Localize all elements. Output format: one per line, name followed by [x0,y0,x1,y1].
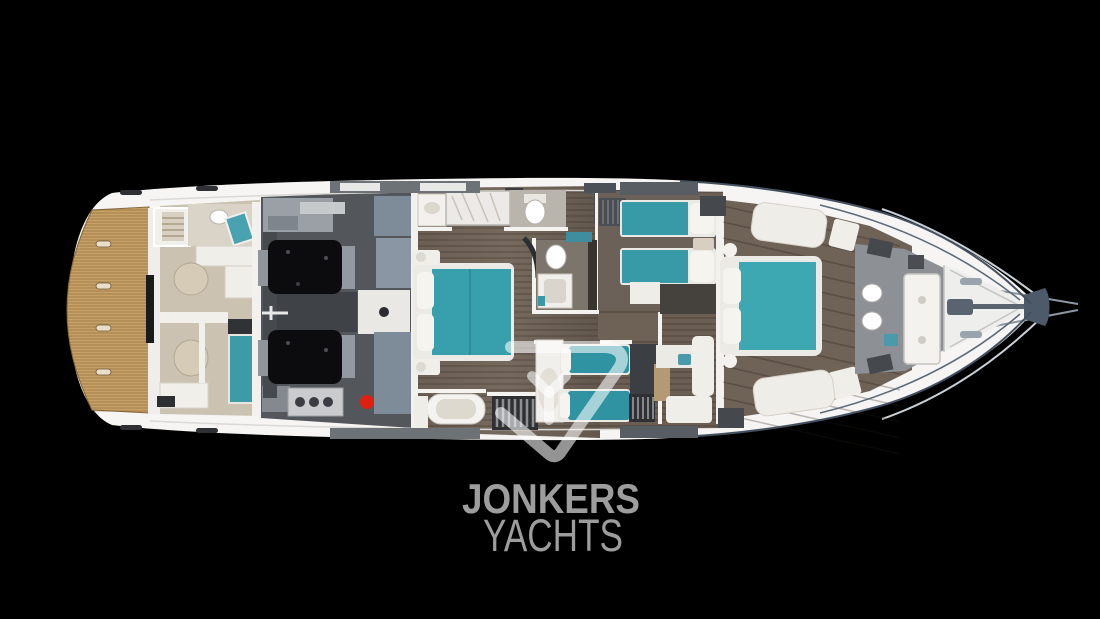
svg-text:YACHTS: YACHTS [483,510,623,561]
